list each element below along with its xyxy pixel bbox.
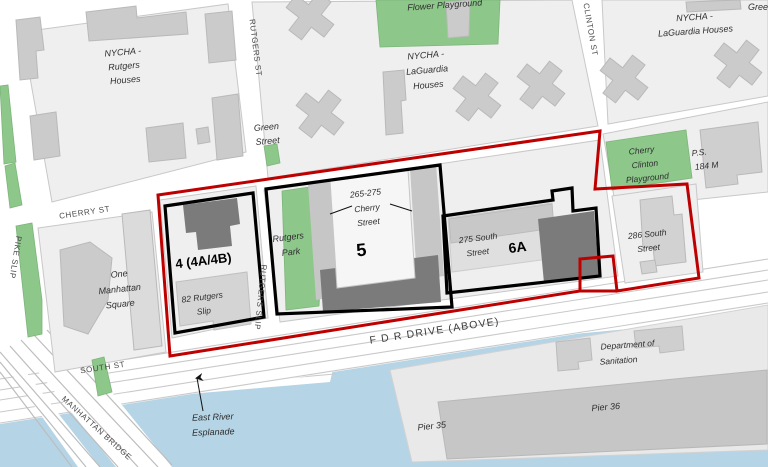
label-site-6a: 6A	[508, 238, 528, 256]
label-ps-184: P.S.	[691, 147, 707, 159]
svg-text:Street: Street	[255, 135, 280, 147]
label-east-river-esplanade: East River	[192, 411, 235, 422]
label-clinton-st: CLINTON ST	[581, 2, 599, 56]
label-site-5: 5	[355, 240, 367, 261]
svg-text:Slip: Slip	[196, 305, 212, 317]
pike-slip-green-1	[0, 85, 16, 164]
site-6a-dark-building	[538, 211, 599, 283]
green-street-median	[264, 144, 280, 166]
label-green-clipped: Gree	[748, 2, 768, 12]
pike-slip-green-2	[5, 163, 22, 208]
site-map: NYCHA - Rutgers Houses NYCHA - LaGuardia…	[0, 0, 768, 467]
map-canvas: NYCHA - Rutgers Houses NYCHA - LaGuardia…	[0, 0, 768, 467]
label-one-manhattan-square: One	[110, 268, 128, 280]
label-cherry-st: CHERRY ST	[59, 204, 111, 220]
svg-text:Esplanade: Esplanade	[192, 426, 235, 437]
